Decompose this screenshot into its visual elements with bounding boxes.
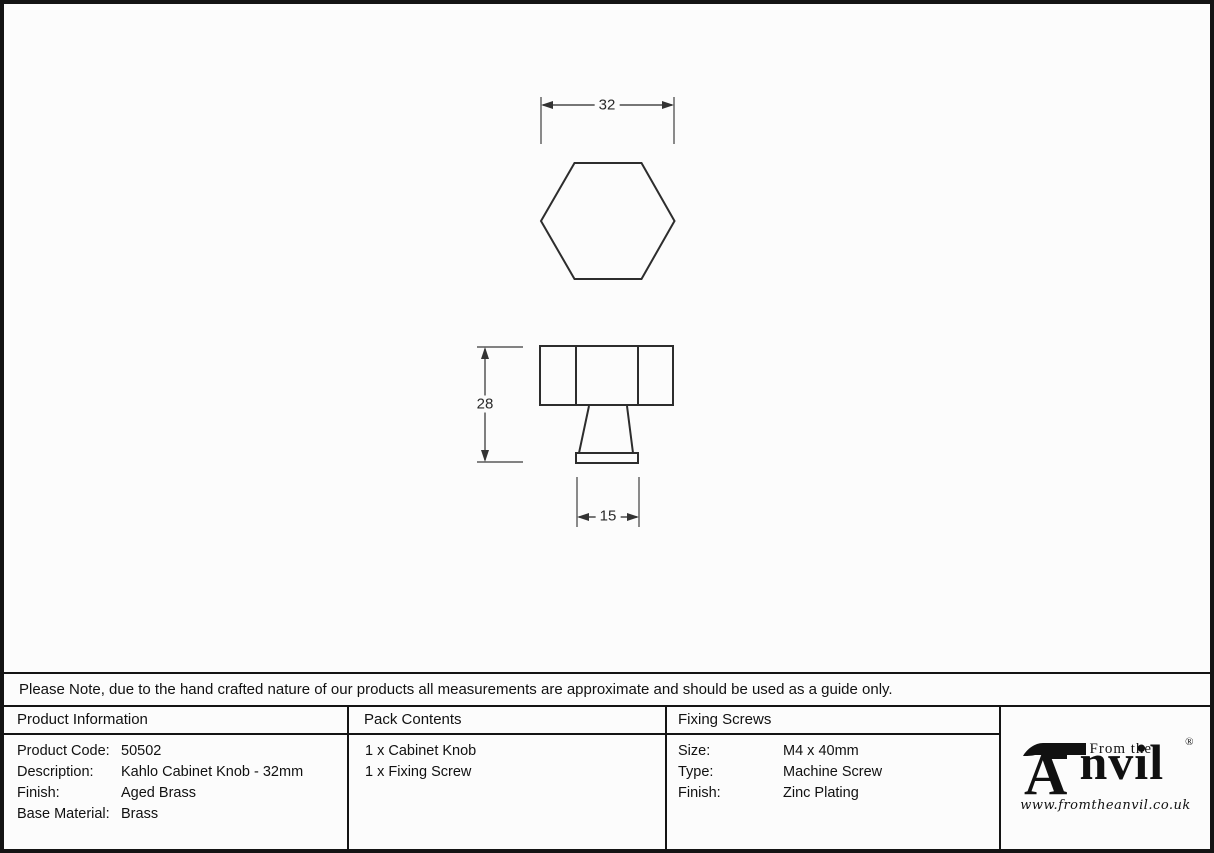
description-value: Kahlo Cabinet Knob - 32mm [121,764,339,780]
product-information-header: Product Information [17,705,337,733]
brand-logo-inner: A From the nvil ® www.fromtheanvil.co.uk [1022,738,1190,818]
product-information-body: Product Code: 50502 Description: Kahlo C… [17,740,339,824]
pack-contents-header: Pack Contents [364,705,654,733]
screw-finish-value: Zinc Plating [783,785,990,801]
dim-28-label: 28 [473,396,498,413]
dim-28-arrow-top [481,347,489,359]
base-material-value: Brass [121,806,339,822]
dim-32-arrow-left [541,101,553,109]
finish-value: Aged Brass [121,785,339,801]
table-row: Size: M4 x 40mm [678,740,990,761]
table-row: Base Material: Brass [17,803,339,824]
table-row: Product Code: 50502 [17,740,339,761]
table-row: Finish: Aged Brass [17,782,339,803]
anvil-letter-a-icon: A [1022,740,1088,798]
dim-15-arrow-left [577,513,589,521]
divider-packcontents-fixingscrews [665,705,667,853]
table-top-border [0,705,1214,707]
dim-15-arrow-right [627,513,639,521]
list-item: 1 x Fixing Screw [365,761,655,782]
description-label: Description: [17,764,121,780]
dim-32-arrow-right [662,101,674,109]
pack-contents-body: 1 x Cabinet Knob 1 x Fixing Screw [365,740,655,782]
dim-15-label: 15 [596,508,621,525]
registered-trademark-icon: ® [1185,736,1193,748]
table-row: Finish: Zinc Plating [678,782,990,803]
knob-head-side-view [540,346,673,405]
list-item: 1 x Cabinet Knob [365,740,655,761]
logo-brand-text: nvil [1080,732,1165,792]
pack-item-screw: 1 x Fixing Screw [365,764,471,780]
disclaimer-note-text: Please Note, due to the hand crafted nat… [19,681,893,698]
spec-sheet-page: 32 28 15 Please Note, due to the hand cr… [0,0,1214,853]
screw-size-value: M4 x 40mm [783,743,990,759]
disclaimer-note: Please Note, due to the hand crafted nat… [4,674,1210,705]
base-material-label: Base Material: [17,806,121,822]
table-row: Description: Kahlo Cabinet Knob - 32mm [17,761,339,782]
knob-stem [579,406,633,453]
screw-finish-label: Finish: [678,785,783,801]
note-row-top-border [0,672,1214,674]
brand-logo: A From the nvil ® www.fromtheanvil.co.uk [1001,707,1210,849]
fixing-screws-header: Fixing Screws [678,705,988,733]
table-row: Type: Machine Screw [678,761,990,782]
hexagon-top-view [541,163,675,279]
finish-label: Finish: [17,785,121,801]
dim-28-arrow-bottom [481,450,489,462]
pack-item-knob: 1 x Cabinet Knob [365,743,476,759]
table-header-bottom-border [0,733,1001,735]
product-code-label: Product Code: [17,743,121,759]
divider-productinfo-packcontents [347,705,349,853]
product-code-value: 50502 [121,743,339,759]
screw-type-label: Type: [678,764,783,780]
screw-type-value: Machine Screw [783,764,990,780]
logo-website-url: www.fromtheanvil.co.uk [1018,798,1194,813]
divider-fixingscrews-logo [999,705,1001,853]
screw-size-label: Size: [678,743,783,759]
fixing-screws-body: Size: M4 x 40mm Type: Machine Screw Fini… [678,740,990,803]
knob-base-plate [576,453,638,463]
dim-32-label: 32 [595,97,620,114]
